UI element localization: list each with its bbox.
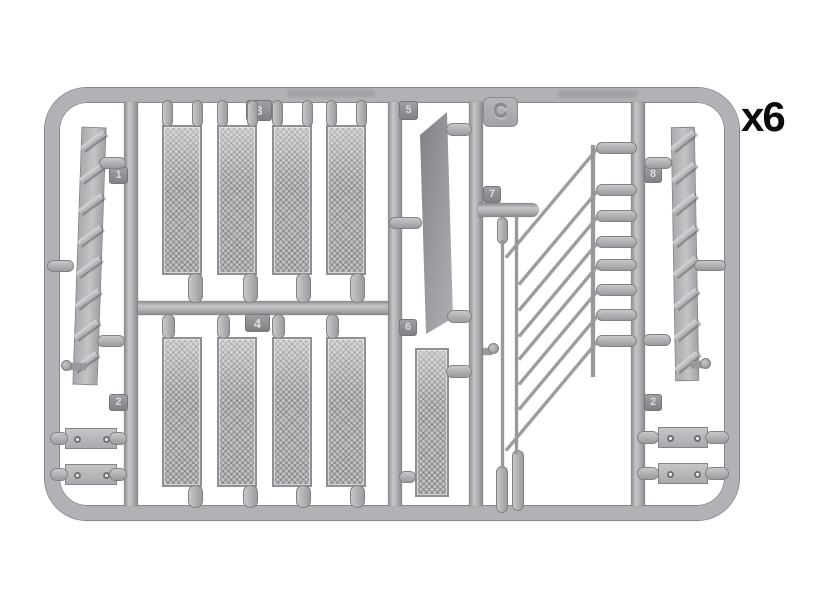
sprue-gate-pill: [446, 365, 472, 378]
stub-ball: [700, 358, 711, 369]
sprue-gate-pill: [188, 273, 203, 303]
strip-ridge: [77, 225, 103, 246]
strip-ridge: [672, 224, 698, 246]
part-4-mesh-panel: [162, 337, 202, 487]
part-6-mesh-panel: [415, 348, 449, 497]
strip-ridge: [671, 193, 697, 215]
part-8-ridged-strip: [671, 127, 699, 381]
sprue-gate-pill: [243, 485, 258, 508]
part-tab-2-left: 2: [109, 394, 128, 411]
part-4-mesh-panel: [272, 337, 312, 487]
sprue-gate-pill: [162, 314, 175, 339]
mold-mark: [287, 90, 375, 97]
sprue-gate-pill: [447, 310, 472, 323]
part-3-mesh-panel: [162, 125, 202, 275]
strip-ridge: [78, 193, 104, 214]
part-2-hinge-plate: [658, 463, 708, 484]
sprue-gate-pill: [217, 100, 228, 127]
sprue-gate-pill: [162, 100, 173, 127]
railing-gate-pill: [596, 259, 637, 271]
plate-hole: [667, 471, 674, 478]
railing-gate-pill: [596, 184, 637, 196]
strip-ridge: [74, 288, 100, 309]
sprue-gate-pill: [47, 260, 74, 272]
runner-a: [124, 102, 138, 506]
sprue-gate-pill: [399, 471, 416, 483]
sprue-gate-pill: [99, 157, 126, 169]
sprue-gate-pill: [296, 273, 311, 303]
runner-d: [631, 102, 645, 506]
sprue-gate-pill: [705, 431, 729, 444]
runner-c: [469, 102, 483, 506]
sprue-gate-pill: [188, 485, 203, 508]
sprue-gate-pill: [326, 314, 339, 339]
sprue-gate-pill: [350, 273, 365, 303]
part-2-hinge-plate: [658, 427, 708, 448]
sprue-letter-tab: C: [483, 97, 518, 127]
sprue-gate-pill: [50, 468, 68, 481]
sprue-gate-pill: [389, 217, 422, 229]
sprue-gate-pill: [272, 100, 283, 127]
sprue-gate-pill: [356, 100, 367, 127]
part-tab-6: 6: [399, 319, 417, 336]
sprue-gate-pill: [637, 467, 659, 480]
sprue-gate-pill: [705, 467, 729, 480]
strip-ridge: [670, 130, 696, 152]
part-3-mesh-panel: [217, 125, 257, 275]
sprue-photo: 1 2 3 4 5 6 7 8 2 C x6: [0, 0, 820, 615]
railing-gate-pill: [596, 284, 637, 296]
strip-ridge: [73, 319, 99, 340]
part-tab-7: 7: [483, 186, 501, 203]
runner-mid: [138, 301, 388, 315]
sprue-gate-pill: [694, 260, 726, 271]
stub-ball: [488, 343, 499, 354]
part-tab-2-right: 2: [644, 394, 662, 411]
strip-ridge: [673, 287, 699, 309]
plate-hole: [74, 472, 81, 479]
sprue-gate-pill: [50, 432, 68, 445]
sprue-gate-pill: [109, 432, 127, 445]
railing-gate-pill: [596, 236, 637, 248]
sprue-gate-pill: [247, 100, 258, 127]
sprue-gate-pill: [109, 468, 127, 481]
strip-ridge: [80, 130, 106, 151]
sprue-gate-pill: [97, 335, 125, 347]
strip-ridge: [671, 161, 697, 183]
sprue-gate-pill: [637, 431, 659, 444]
part-4-mesh-panel: [217, 337, 257, 487]
strip-ridge: [76, 256, 102, 277]
sprue-gate-pill: [643, 334, 671, 346]
part-tab-4: 4: [245, 314, 270, 332]
sprue-gate-pill: [446, 123, 472, 136]
mold-mark: [558, 90, 638, 98]
sprue-gate-pill: [217, 314, 230, 339]
stub-ball: [61, 360, 72, 371]
sprue-gate-pill: [302, 100, 313, 127]
railing-post: [501, 240, 504, 468]
runner-b: [388, 102, 402, 506]
sprue-gate-pill: [496, 466, 508, 513]
railing-gate-pill: [596, 309, 637, 321]
part-tab-1: 1: [109, 167, 128, 184]
sprue-gate-pill: [512, 450, 524, 511]
runner-arm: [478, 203, 539, 217]
sprue-gate-pill: [272, 314, 285, 339]
plate-hole: [74, 436, 81, 443]
railing-gate-pill: [596, 335, 637, 347]
plate-hole: [694, 435, 701, 442]
sprue-gate-pill: [296, 485, 311, 508]
plate-hole: [667, 435, 674, 442]
part-3-mesh-panel: [326, 125, 366, 275]
sprue-gate-pill: [644, 157, 672, 169]
plate-hole: [694, 471, 701, 478]
railing-gate-pill: [596, 142, 637, 154]
railing-gate-pill: [596, 210, 637, 222]
sprue-gate-pill: [192, 100, 203, 127]
sprue-gate-pill: [243, 273, 258, 303]
sprue-gate-pill: [350, 485, 365, 508]
part-4-mesh-panel: [326, 337, 366, 487]
sprue-gate-pill: [326, 100, 337, 127]
part-3-mesh-panel: [272, 125, 312, 275]
strip-ridge: [674, 319, 700, 341]
quantity-label: x6: [741, 93, 784, 141]
part-tab-5: 5: [399, 101, 418, 120]
